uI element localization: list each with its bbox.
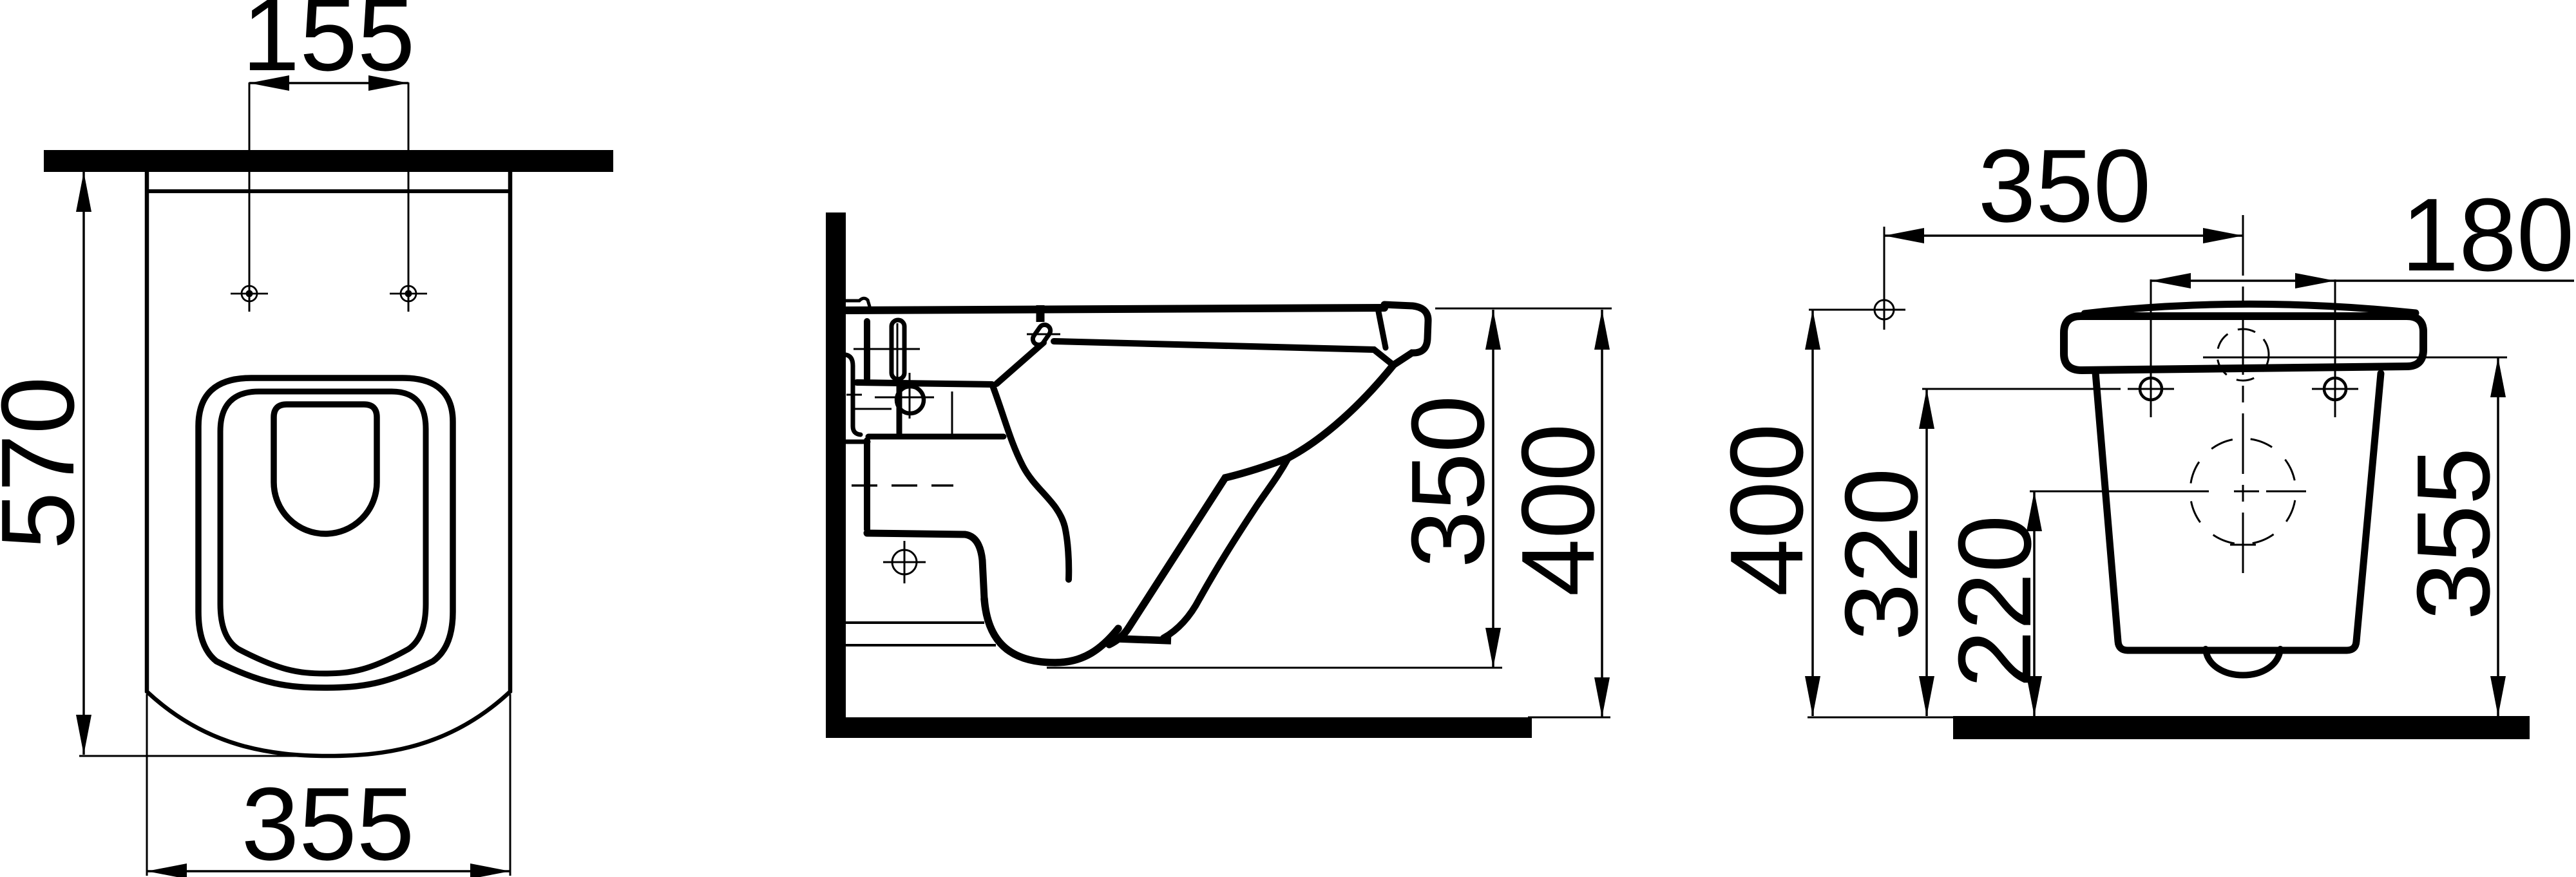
svg-text:220: 220: [1937, 515, 2053, 688]
svg-text:320: 320: [1824, 468, 1940, 641]
svg-text:180: 180: [2401, 177, 2575, 293]
svg-text:355: 355: [2396, 448, 2512, 621]
svg-text:570: 570: [0, 377, 96, 550]
svg-text:350: 350: [1978, 128, 2151, 244]
svg-text:350: 350: [1390, 395, 1506, 569]
svg-text:355: 355: [242, 766, 415, 877]
svg-text:155: 155: [242, 0, 415, 93]
svg-text:400: 400: [1500, 424, 1616, 597]
svg-text:400: 400: [1709, 424, 1825, 597]
